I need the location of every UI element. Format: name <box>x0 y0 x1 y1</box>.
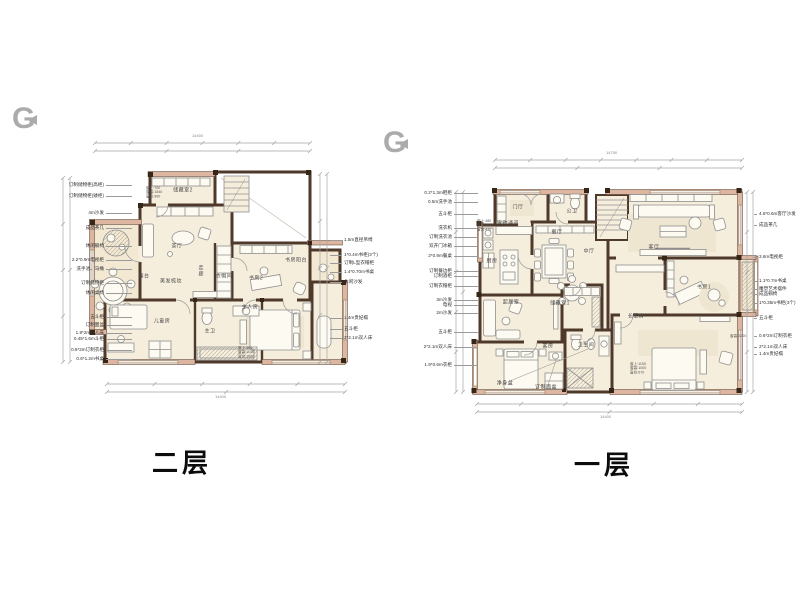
annotation-label: 洗手池、马桶 <box>28 267 104 272</box>
annotation-row: 成品躺椅 <box>754 291 800 297</box>
annotation-row: 五斗柜 <box>28 314 132 320</box>
leader-line <box>454 365 478 366</box>
annotation-row: 1.1*0.7m书桌 <box>754 278 800 284</box>
annotation-label: 电视 <box>352 303 452 308</box>
leader-line <box>330 282 342 283</box>
room-label: 门厅 <box>512 206 523 211</box>
annotation-label: 订制酒柜 <box>352 274 452 279</box>
window-spec-line: 窗台:470 <box>477 228 493 232</box>
annotation-row: 0.45*1.6m斗柜 <box>28 336 132 342</box>
leader-line <box>106 293 132 294</box>
annotation-row: 洗衣机 <box>352 225 478 231</box>
leader-line <box>330 263 342 264</box>
leader-line <box>454 246 478 247</box>
brand-watermark-logo: G <box>383 128 409 158</box>
leader-line <box>454 276 478 277</box>
leader-line <box>754 347 757 348</box>
annotation-row: 洗手池、马桶 <box>28 266 132 272</box>
room-label: 儿童房 <box>154 320 171 325</box>
window-spec-line: 窗台:900 <box>146 195 162 199</box>
annotation-label: 0.6*1.2m书桌 <box>28 357 104 362</box>
leader-line <box>330 318 342 319</box>
annotation-label: 订制储物柜(高柜) <box>28 183 104 188</box>
annotation-label: 2m沙发 <box>352 311 452 316</box>
leader-line <box>454 300 478 301</box>
leader-line <box>106 269 132 270</box>
annotation-label: 4.6*0.6m客厅沙发 <box>759 212 796 217</box>
annotation-label: 休闲桌椅 <box>28 291 104 296</box>
leader-line <box>106 213 132 214</box>
leader-line <box>754 354 757 355</box>
annotation-row: 订制储物柜(矮柜) <box>28 193 132 199</box>
annotation-row: 2*2.1m双人床 <box>330 335 418 341</box>
annotation-label: 4m沙发 <box>28 211 104 216</box>
room-label: 客厅 <box>648 246 659 251</box>
annotation-row: 0.2*1.3m鞋柜 <box>352 190 478 196</box>
annotation-row: 4m沙发 <box>28 210 132 216</box>
dimension-total: 14750 <box>606 151 617 156</box>
room-label: 书房2 <box>249 277 263 282</box>
annotation-label: 五斗柜 <box>352 212 452 217</box>
fixture-label: 订制面盆 <box>535 386 557 391</box>
annotation-label: 双开门冰箱 <box>352 244 452 249</box>
leader-line <box>454 193 478 194</box>
leader-line <box>454 305 478 306</box>
annotation-row: 订制L型衣帽柜 <box>330 260 418 266</box>
leader-line <box>754 281 757 282</box>
label-layer: G G 二层 一层 储藏室2茶厅露台走廊美发梳妆衣帽间书房2书房阳台儿童房主卫主… <box>0 0 800 600</box>
annotation-label: 成品躺椅 <box>759 292 777 297</box>
room-label: 书房阳台 <box>285 259 307 264</box>
annotation-row: 订制洗衣池 <box>352 234 478 240</box>
annotation-label: 五斗柜 <box>759 316 773 321</box>
annotation-label: 订制衣帽柜 <box>352 284 452 289</box>
floor-plan-sheet: G G 二层 一层 储藏室2茶厅露台走廊美发梳妆衣帽间书房2书房阳台儿童房主卫主… <box>0 0 800 600</box>
leader-line <box>454 202 478 203</box>
leader-line <box>106 260 132 261</box>
leader-line <box>454 237 478 238</box>
annotation-row: 订制酒柜 <box>352 273 478 279</box>
annotation-row: 订制衣帽柜 <box>352 283 478 289</box>
leader-line <box>106 317 132 318</box>
leader-line <box>106 333 132 334</box>
annotation-label: 2*2.1m双人床 <box>344 336 372 341</box>
leader-line <box>330 240 342 241</box>
annotation-row: 订制储物柜 <box>28 280 132 286</box>
fixture-label: 净身盆 <box>497 382 514 387</box>
window-spec: 窗上:485窗高:1140窗台:1000 <box>238 346 254 359</box>
annotation-label: 0.9*2m订制衣柜 <box>28 348 104 353</box>
annotation-label: 3.6m电视柜 <box>759 255 783 260</box>
annotation-label: 2.2*0.9m电视柜 <box>28 258 104 263</box>
annotation-row: 休闲桌椅 <box>28 290 132 296</box>
room-label: 卫生间 <box>578 344 595 349</box>
room-label: 储藏室1 <box>550 302 570 307</box>
room-label: 走廊 <box>198 265 203 277</box>
annotation-row: 电视 <box>352 302 478 308</box>
room-label: 露台 <box>138 275 149 280</box>
room-label: 主卫 <box>204 330 215 335</box>
leader-line <box>106 325 132 326</box>
room-label: 公卫 <box>566 210 577 215</box>
annotation-label: 订制储物柜 <box>28 281 104 286</box>
room-label: 书房1 <box>697 286 711 291</box>
room-label: 中厅 <box>583 250 594 255</box>
annotation-row: 双开门冰箱 <box>352 243 478 249</box>
leader-line <box>754 289 757 290</box>
leader-line <box>106 228 132 229</box>
leader-line <box>454 286 478 287</box>
leader-line <box>106 350 132 351</box>
annotation-label: 2*2.1m双人床 <box>352 345 452 350</box>
leader-line <box>454 214 478 215</box>
leader-line <box>754 318 757 319</box>
annotation-label: 五斗柜 <box>352 330 452 335</box>
annotation-row: 1.9*0.6m衣柜 <box>352 362 478 368</box>
leader-line <box>106 196 132 197</box>
annotation-row: 0.9*2m订制衣柜 <box>28 347 132 353</box>
window-spec-line: 窗台:670 <box>630 371 646 375</box>
window-spec: 窗上:700窗高:1540窗台:900 <box>146 186 162 199</box>
leader-line <box>330 255 342 256</box>
brand-watermark-logo: G <box>12 104 38 134</box>
annotation-row: 五斗柜 <box>754 315 800 321</box>
leader-line <box>106 246 132 247</box>
leader-line <box>454 256 478 257</box>
annotation-label: 订制洗衣池 <box>352 235 452 240</box>
annotation-row: 2*0.9m餐桌 <box>352 253 478 259</box>
leader-line <box>454 228 478 229</box>
leader-line <box>330 329 342 330</box>
room-label: 美发梳妆 <box>160 280 182 285</box>
logo-arrow-icon <box>399 139 408 149</box>
annotation-row: 2*2.1m双人床 <box>754 344 800 350</box>
annotation-row: 4.6*0.6m客厅沙发 <box>754 211 800 217</box>
annotation-row: 休闲躺椅 <box>28 243 132 249</box>
annotation-row: 0.5m洗手池 <box>352 199 478 205</box>
window-spec-line: 窗高:2200 <box>730 334 746 338</box>
room-label: 厨房 <box>486 260 497 265</box>
annotation-row: 3.6m电视柜 <box>754 254 800 260</box>
leader-line <box>454 271 478 272</box>
annotation-row: 2.2*0.9m电视柜 <box>28 257 132 263</box>
annotation-label: 订制面盆 <box>28 323 104 328</box>
leader-line <box>754 336 757 337</box>
annotation-label: 1.9*2m双人床 <box>28 331 104 336</box>
annotation-label: 0.45*1.6m斗柜 <box>28 337 104 342</box>
annotation-label: 成品茶几 <box>28 226 104 231</box>
annotation-row: 1*0.35m书柜(3个) <box>754 300 800 306</box>
leader-line <box>454 313 478 314</box>
annotation-label: 1.4m贵妃榻 <box>759 352 783 357</box>
annotation-label: 洗衣机 <box>352 226 452 231</box>
room-label: 储藏室2 <box>173 189 193 194</box>
window-spec: 窗上:480窗高:1440窗台:470 <box>477 219 493 232</box>
room-label: 主人房 <box>242 306 259 311</box>
annotation-label: 休闲躺椅 <box>28 244 104 249</box>
annotation-label: 1.4m贵妃榻 <box>344 316 368 321</box>
leader-line <box>754 303 757 304</box>
annotation-label: 成品茶几 <box>759 223 777 228</box>
annotation-row: 订制储物柜(高柜) <box>28 182 132 188</box>
leader-line <box>754 257 757 258</box>
annotation-label: 0.2*1.3m鞋柜 <box>352 191 452 196</box>
leader-line <box>330 272 342 273</box>
room-label: 茶厅 <box>171 245 182 250</box>
leader-line <box>454 347 478 348</box>
room-label: 起居室 <box>503 301 520 306</box>
annotation-row: 五斗柜 <box>352 329 478 335</box>
annotation-row: 1.4m贵妃榻 <box>754 351 800 357</box>
leader-line <box>454 332 478 333</box>
annotation-row: 五斗柜 <box>352 211 478 217</box>
room-label: 客房 <box>542 345 553 350</box>
leader-line <box>754 294 757 295</box>
leader-line <box>754 225 757 226</box>
room-label: 衣帽间 <box>216 275 233 280</box>
leader-line <box>330 338 342 339</box>
leader-line <box>106 359 132 360</box>
annotation-row: 成品茶几 <box>28 225 132 231</box>
logo-arrow-icon <box>28 115 37 125</box>
room-label: 餐厅 <box>551 231 562 236</box>
annotation-label: 1.9*0.6m衣柜 <box>352 363 452 368</box>
leader-line <box>106 185 132 186</box>
annotation-row: 成品茶几 <box>754 222 800 228</box>
annotation-label: 0.6*2m订制衣柜 <box>759 334 792 339</box>
annotation-row: 订制面盆 <box>28 322 132 328</box>
annotation-row: 0.6*1.2m书桌 <box>28 356 132 362</box>
dimension-total: 14400 <box>215 395 226 400</box>
annotation-row: 2m沙发 <box>352 310 478 316</box>
leader-line <box>106 283 132 284</box>
room-label: 家政通道 <box>497 222 519 227</box>
annotation-row: 0.6*2m订制衣柜 <box>754 333 800 339</box>
window-spec: 窗高:2200 <box>730 334 746 338</box>
dimension-total: 14400 <box>192 134 203 139</box>
annotation-label: 1*0.35m书柜(3个) <box>759 301 796 306</box>
annotation-label: 1.1*0.7m书桌 <box>759 279 787 284</box>
dimension-total: 14400 <box>600 415 611 420</box>
caption-second-floor: 二层 <box>152 450 212 476</box>
room-label: 长辈房 <box>628 315 645 320</box>
leader-line <box>754 214 757 215</box>
annotation-label: 五斗柜 <box>28 315 104 320</box>
annotation-label: 订制储物柜(矮柜) <box>28 194 104 199</box>
annotation-label: 2*0.9m餐桌 <box>352 254 452 259</box>
window-spec-line: 窗台:1000 <box>238 355 254 359</box>
leader-line <box>106 339 132 340</box>
window-spec: 窗上:1150窗高:1000窗台:670 <box>630 362 646 375</box>
annotation-label: 0.5m洗手池 <box>352 200 452 205</box>
annotation-label: 2*2.1m双人床 <box>759 345 787 350</box>
annotation-row: 2*2.1m双人床 <box>352 344 478 350</box>
annotation-label: 订制L型衣帽柜 <box>344 261 374 266</box>
caption-first-floor: 一层 <box>574 452 634 478</box>
